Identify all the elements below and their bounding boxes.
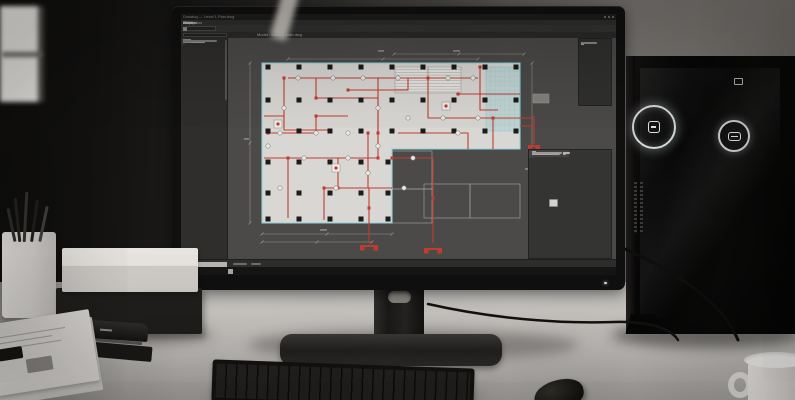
docked-panel-top-right [578, 38, 612, 106]
stapler-brand-mark [100, 329, 112, 331]
command-bar [181, 259, 616, 267]
screen-bottom-strip [181, 275, 616, 278]
maximize-button[interactable] [608, 16, 610, 18]
properties-panel [528, 149, 612, 259]
os-taskbar [181, 267, 616, 275]
list-item-label [532, 152, 552, 154]
monitor-stand-neck [374, 283, 424, 339]
monitor-stand-base [280, 334, 502, 366]
toolbar [181, 25, 616, 32]
docked-panel-row[interactable] [579, 39, 583, 47]
white-box [62, 248, 198, 292]
workspace-field[interactable] [183, 33, 227, 37]
case-badge-icon [734, 78, 743, 85]
gray-card [26, 355, 54, 373]
status-segment [233, 263, 247, 265]
photo-desk-scene: Drawing — Level 1 Plan.dwg FileEditViewI… [0, 0, 795, 400]
palette-item[interactable] [181, 38, 185, 44]
palette-item-label [183, 40, 202, 42]
pump-logo-icon [728, 132, 741, 141]
close-button[interactable] [612, 16, 614, 18]
pen-cup [2, 232, 56, 318]
window-frame-bar [2, 52, 42, 57]
floating-tool-button[interactable] [549, 199, 558, 207]
layer-dropdown[interactable] [186, 26, 216, 31]
panel-list-item[interactable] [529, 150, 535, 156]
panel-row-label [581, 42, 592, 44]
power-led [604, 282, 607, 284]
pump-ring-icon [718, 120, 750, 152]
rgb-strip [640, 182, 643, 234]
minimize-button[interactable] [604, 16, 606, 18]
palette-scrollbar[interactable] [225, 40, 227, 100]
screen: Drawing — Level 1 Plan.dwg FileEditViewI… [181, 14, 616, 278]
cpu-fan-ring-icon [632, 105, 676, 149]
monitor: Drawing — Level 1 Plan.dwg FileEditViewI… [172, 6, 625, 290]
keyboard-keys [215, 364, 470, 400]
toolbar-button-19[interactable] [183, 27, 187, 31]
status-segment [251, 263, 261, 265]
tower-foot [626, 314, 657, 334]
pc-tower [626, 56, 795, 334]
cable-routing-hole [388, 291, 411, 303]
rgb-strip [634, 182, 637, 234]
fan-logo-icon [648, 121, 660, 133]
left-tool-palette [181, 38, 228, 259]
notebook-papers [0, 306, 111, 400]
taskbar-app-icon-7[interactable] [228, 269, 233, 274]
